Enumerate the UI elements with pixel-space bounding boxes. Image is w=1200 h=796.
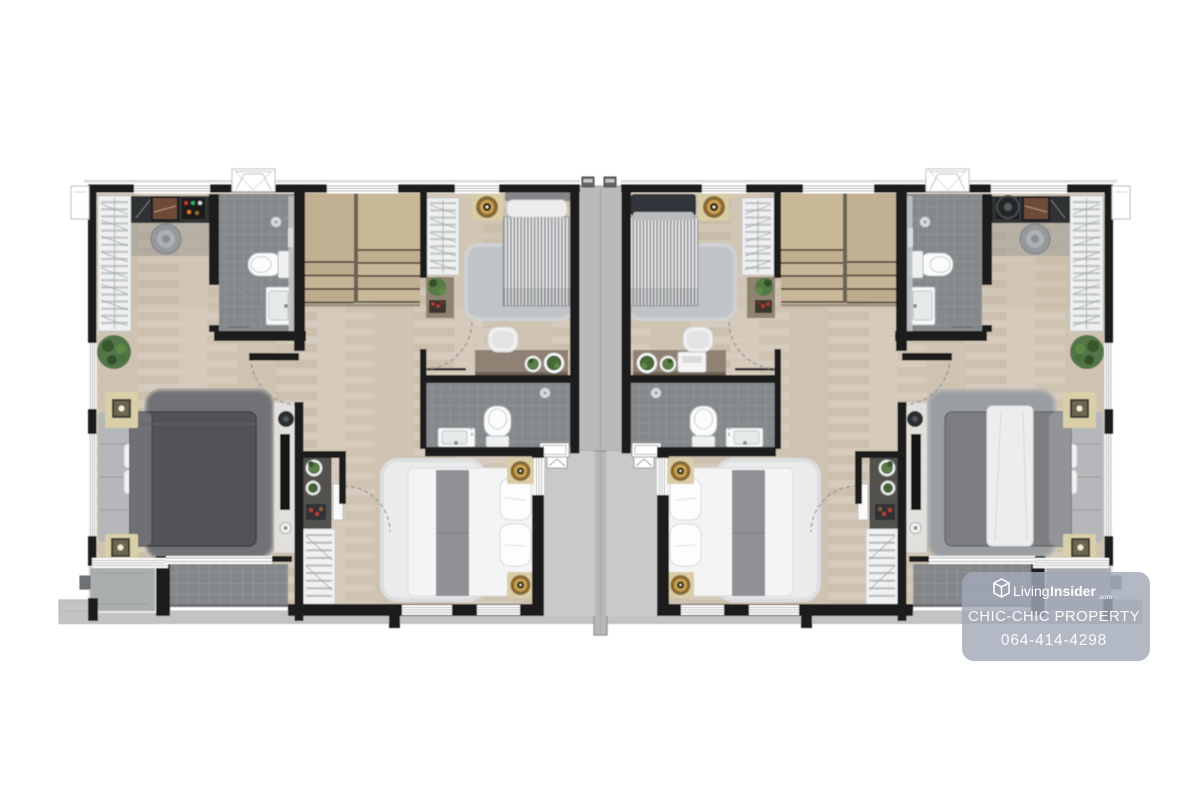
svg-text:Insider: Insider bbox=[1050, 583, 1096, 599]
svg-text:Living: Living bbox=[1013, 583, 1050, 599]
svg-text:CHIC-CHIC PROPERTY: CHIC-CHIC PROPERTY bbox=[968, 608, 1140, 625]
svg-text:.com: .com bbox=[1098, 594, 1112, 601]
svg-text:064-414-4298: 064-414-4298 bbox=[1001, 632, 1107, 649]
